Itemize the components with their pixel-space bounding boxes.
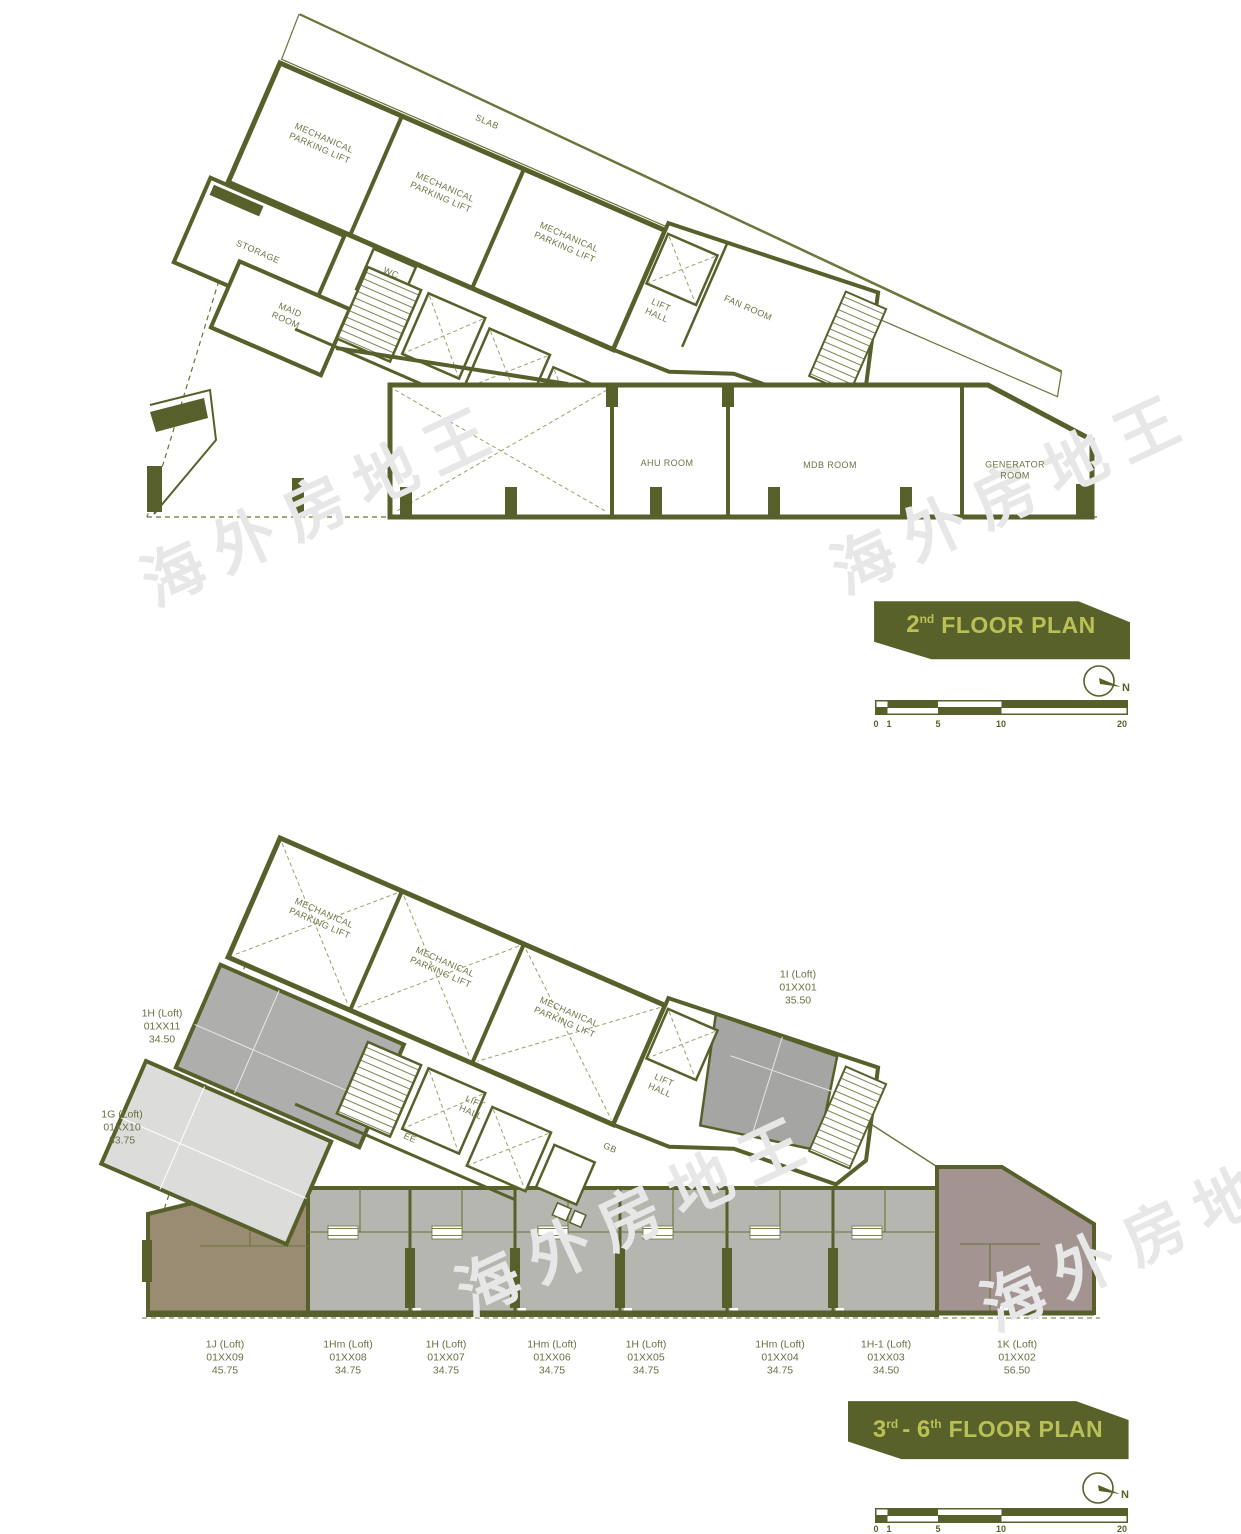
unit-area: 35.50: [779, 995, 816, 1008]
title-number-2: - 6: [902, 1416, 930, 1444]
unit-area: 34.75: [626, 1365, 667, 1378]
unit-label-1hm-01xx06: 1Hm (Loft) 01XX06 34.75: [527, 1339, 577, 1378]
unit-1k-fill: [937, 1167, 1094, 1313]
unit-label-1hm-01xx08: 1Hm (Loft) 01XX08 34.75: [323, 1339, 373, 1378]
unit-label-1hm-01xx04: 1Hm (Loft) 01XX04 34.75: [755, 1339, 805, 1378]
scale-tick-1: 1: [886, 719, 891, 729]
plan-3rd-6th-floor: [101, 799, 1100, 1443]
unit-name: 1H-1 (Loft): [861, 1339, 911, 1352]
unit-name: 1H (Loft): [426, 1339, 467, 1352]
scale-tick-1: 1: [886, 1524, 891, 1534]
room-label-mdb-room: MDB ROOM: [803, 460, 857, 471]
unit-code: 01XX05: [626, 1352, 667, 1365]
unit-label-1i-01xx01: 1I (Loft) 01XX01 35.50: [779, 969, 816, 1008]
unit-area: 34.75: [323, 1365, 373, 1378]
unit-label-1j-01xx09: 1J (Loft) 01XX09 45.75: [206, 1339, 245, 1378]
scale-tick-20: 20: [1117, 719, 1127, 729]
scale-tick-20: 20: [1117, 1524, 1127, 1534]
floor-plan-page: { "watermark": { "text": "海外房地王" }, "col…: [0, 0, 1241, 1534]
unit-area: 34.75: [527, 1365, 577, 1378]
lower-wing-2nd: [147, 348, 1092, 517]
title-ordinal: nd: [920, 612, 935, 626]
unit-code: 01XX04: [755, 1352, 805, 1365]
scale-tick-10: 10: [996, 1524, 1006, 1534]
unit-area: 34.75: [755, 1365, 805, 1378]
unit-name: 1J (Loft): [206, 1339, 245, 1352]
room-label-generator-room: GENERATOR ROOM: [974, 460, 1056, 481]
unit-area: 34.75: [426, 1365, 467, 1378]
unit-label-1h1-01xx03: 1H-1 (Loft) 01XX03 34.50: [861, 1339, 911, 1378]
unit-area: 56.50: [997, 1365, 1037, 1378]
scale-tick-0: 0: [873, 1524, 878, 1534]
scale-tick-10: 10: [996, 719, 1006, 729]
scale-bar-3rd6th: [875, 1508, 1128, 1523]
north-arrow-3rd6th: [1083, 1473, 1120, 1503]
unit-code: 01XX10: [101, 1122, 142, 1135]
left-structures-2nd: [147, 390, 216, 514]
unit-area: 34.50: [142, 1034, 183, 1047]
title-number: 3: [873, 1416, 886, 1444]
unit-code: 01XX08: [323, 1352, 373, 1365]
floor-plans-drawing: [0, 0, 1241, 1534]
title-ordinal-2: th: [930, 1417, 941, 1431]
title-number: 2: [906, 611, 919, 639]
title-ordinal: rd: [886, 1417, 898, 1431]
unit-name: 1Hm (Loft): [527, 1339, 577, 1352]
unit-label-1h-01xx05: 1H (Loft) 01XX05 34.75: [626, 1339, 667, 1378]
north-label: N: [1121, 1489, 1129, 1501]
unit-code: 01XX09: [206, 1352, 245, 1365]
unit-code: 01XX02: [997, 1352, 1037, 1365]
unit-area: 34.50: [861, 1365, 911, 1378]
unit-label-1g-01xx10: 1G (Loft) 01XX10 33.75: [101, 1109, 142, 1148]
scale-tick-5: 5: [935, 1524, 940, 1534]
room-label-ahu-room: AHU ROOM: [641, 458, 694, 469]
unit-label-1h-01xx11: 1H (Loft) 01XX11 34.50: [142, 1008, 183, 1047]
scale-bar-2nd: [875, 700, 1128, 715]
unit-name: 1Hm (Loft): [755, 1339, 805, 1352]
unit-code: 01XX11: [142, 1021, 183, 1034]
unit-name: 1H (Loft): [142, 1008, 183, 1021]
unit-name: 1Hm (Loft): [323, 1339, 373, 1352]
unit-code: 01XX03: [861, 1352, 911, 1365]
unit-name: 1I (Loft): [779, 969, 816, 982]
plan-title-banner-3rd6th: 3rd- 6thFLOOR PLAN: [846, 1398, 1130, 1461]
unit-name: 1K (Loft): [997, 1339, 1037, 1352]
unit-code: 01XX01: [779, 982, 816, 995]
unit-code: 01XX07: [426, 1352, 467, 1365]
unit-code: 01XX06: [527, 1352, 577, 1365]
scale-tick-5: 5: [935, 719, 940, 729]
unit-label-1h-01xx07: 1H (Loft) 01XX07 34.75: [426, 1339, 467, 1378]
north-label: N: [1122, 682, 1130, 694]
title-text: FLOOR PLAN: [949, 1416, 1104, 1443]
unit-name: 1G (Loft): [101, 1109, 142, 1122]
unit-label-1k-01xx02: 1K (Loft) 01XX02 56.50: [997, 1339, 1037, 1378]
plan-2nd-floor: [147, 8, 1100, 648]
title-text: FLOOR PLAN: [941, 612, 1096, 639]
unit-area: 45.75: [206, 1365, 245, 1378]
north-arrow-2nd: [1084, 666, 1121, 696]
unit-name: 1H (Loft): [626, 1339, 667, 1352]
scale-tick-0: 0: [873, 719, 878, 729]
unit-area: 33.75: [101, 1135, 142, 1148]
